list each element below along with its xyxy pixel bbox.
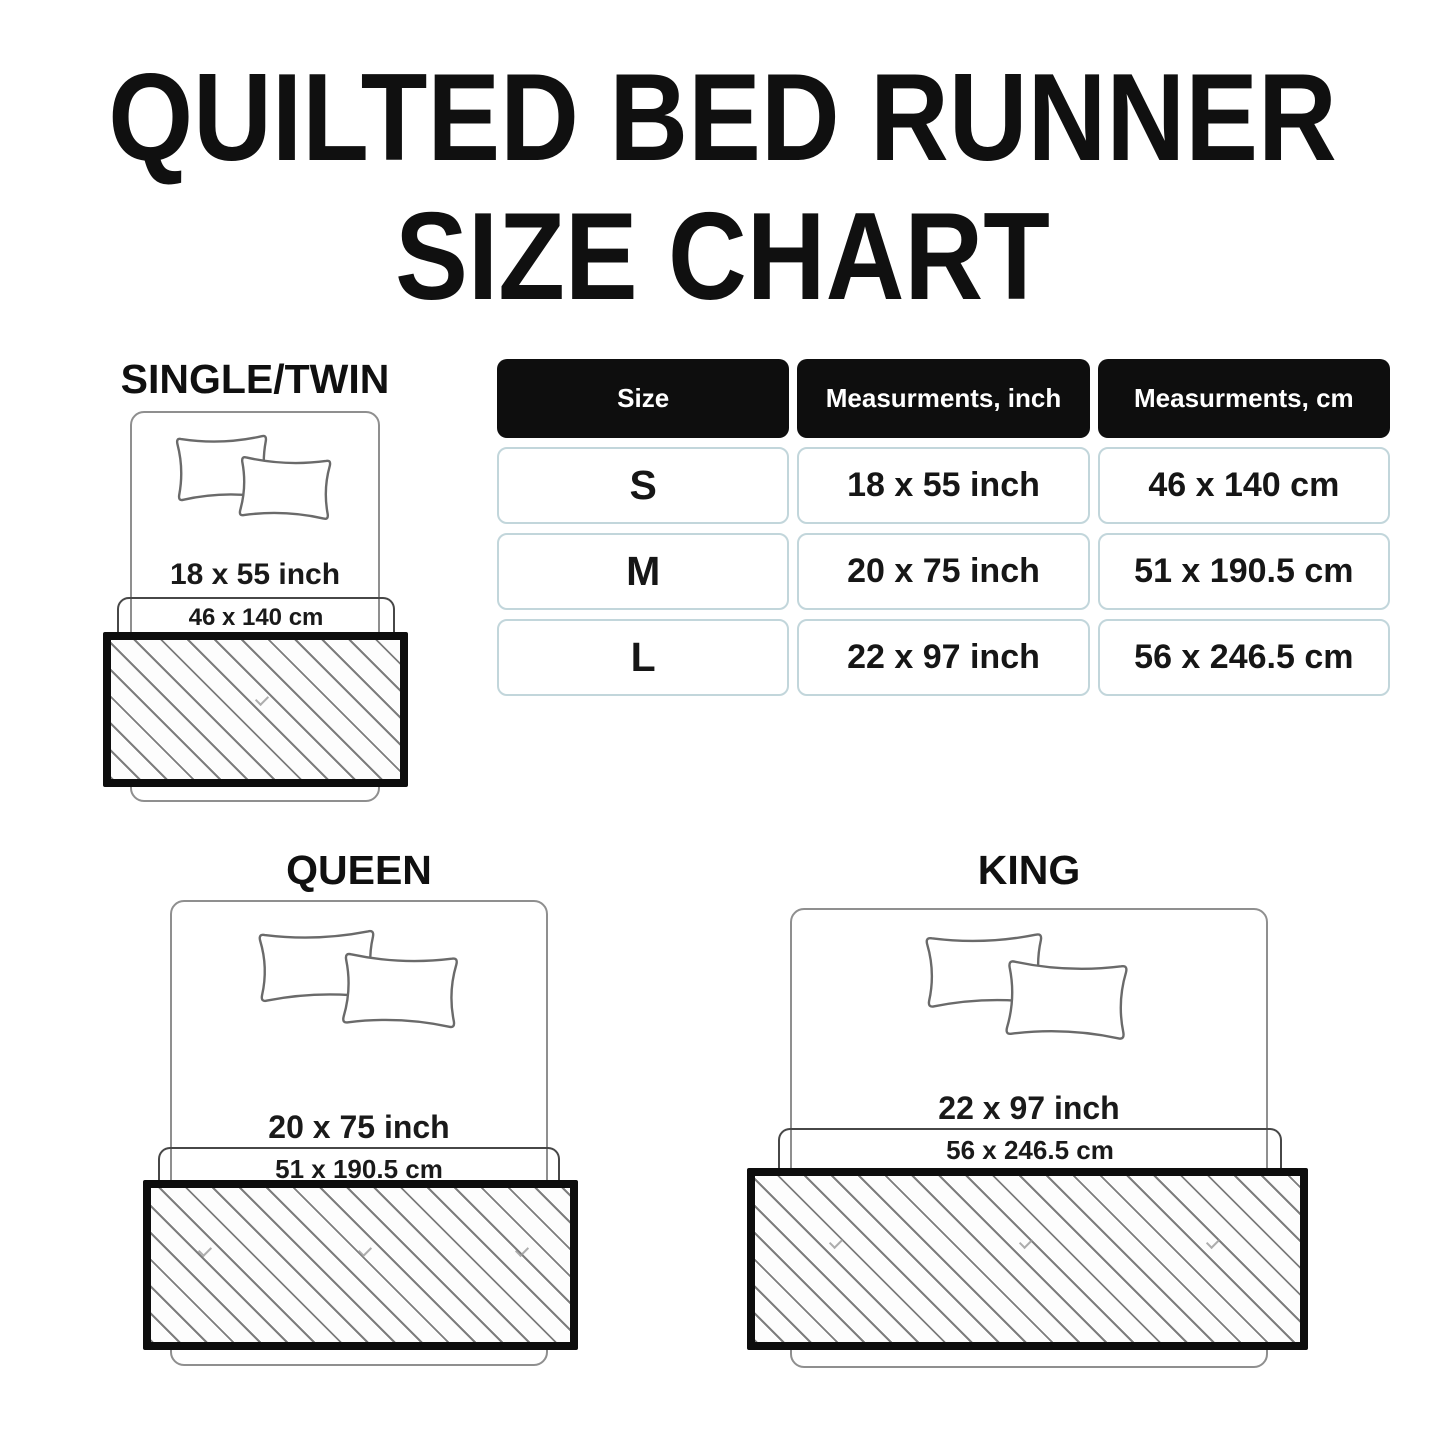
stitch-mark-icon — [515, 1243, 529, 1257]
pillow-icon — [998, 952, 1135, 1048]
stitch-mark-icon — [198, 1243, 212, 1257]
table-cell-inch-s: 18 x 55 inch — [797, 447, 1089, 524]
diagram-label: KING — [978, 850, 1081, 891]
table-cell-size-m: M — [497, 533, 789, 610]
diagram-label: QUEEN — [286, 850, 432, 891]
diagram-queen: QUEEN 20 x 75 inch 51 x 190.5 cm — [130, 840, 600, 1385]
stitch-mark-icon — [255, 692, 269, 706]
page-title-line2: SIZE CHART — [395, 188, 1050, 326]
size-table: Size Measurments, inch Measurments, cm S… — [497, 359, 1390, 696]
diagram-single-twin: SINGLE/TWIN 18 x 55 inch 46 x 140 cm — [90, 355, 420, 820]
size-chart-infographic: QUILTED BED RUNNERSIZE CHART Size Measur… — [0, 0, 1445, 1445]
table-cell-cm-s: 46 x 140 cm — [1098, 447, 1390, 524]
runner-size-cm-label: 46 x 140 cm — [189, 606, 324, 630]
pillow-icon — [233, 450, 336, 526]
runner-size-inch-label: 22 x 97 inch — [938, 1092, 1119, 1124]
runner-size-cm-label: 51 x 190.5 cm — [275, 1156, 443, 1182]
runner-size-inch-label: 20 x 75 inch — [268, 1111, 449, 1143]
table-cell-size-s: S — [497, 447, 789, 524]
page-title: QUILTED BED RUNNERSIZE CHART — [87, 49, 1359, 327]
table-cell-cm-m: 51 x 190.5 cm — [1098, 533, 1390, 610]
bed-runner-hatched — [143, 1180, 578, 1350]
table-cell-size-l: L — [497, 619, 789, 696]
bed-runner-hatched — [103, 632, 408, 787]
table-header-size: Size — [497, 359, 789, 438]
bed-runner-hatched — [747, 1168, 1308, 1350]
table-cell-inch-m: 20 x 75 inch — [797, 533, 1089, 610]
stitch-mark-icon — [829, 1235, 843, 1249]
page-title-line1: QUILTED BED RUNNER — [108, 49, 1337, 187]
table-cell-cm-l: 56 x 246.5 cm — [1098, 619, 1390, 696]
diagram-label: SINGLE/TWIN — [121, 359, 390, 400]
table-header-inch: Measurments, inch — [797, 359, 1089, 438]
pillow-icon — [335, 945, 465, 1035]
diagram-king: KING 22 x 97 inch 56 x 246.5 cm — [735, 840, 1335, 1385]
table-cell-inch-l: 22 x 97 inch — [797, 619, 1089, 696]
stitch-mark-icon — [358, 1243, 372, 1257]
table-header-cm: Measurments, cm — [1098, 359, 1390, 438]
runner-size-inch-label: 18 x 55 inch — [170, 560, 340, 590]
runner-size-cm-label: 56 x 246.5 cm — [946, 1137, 1114, 1163]
stitch-mark-icon — [1019, 1235, 1033, 1249]
stitch-mark-icon — [1206, 1235, 1220, 1249]
